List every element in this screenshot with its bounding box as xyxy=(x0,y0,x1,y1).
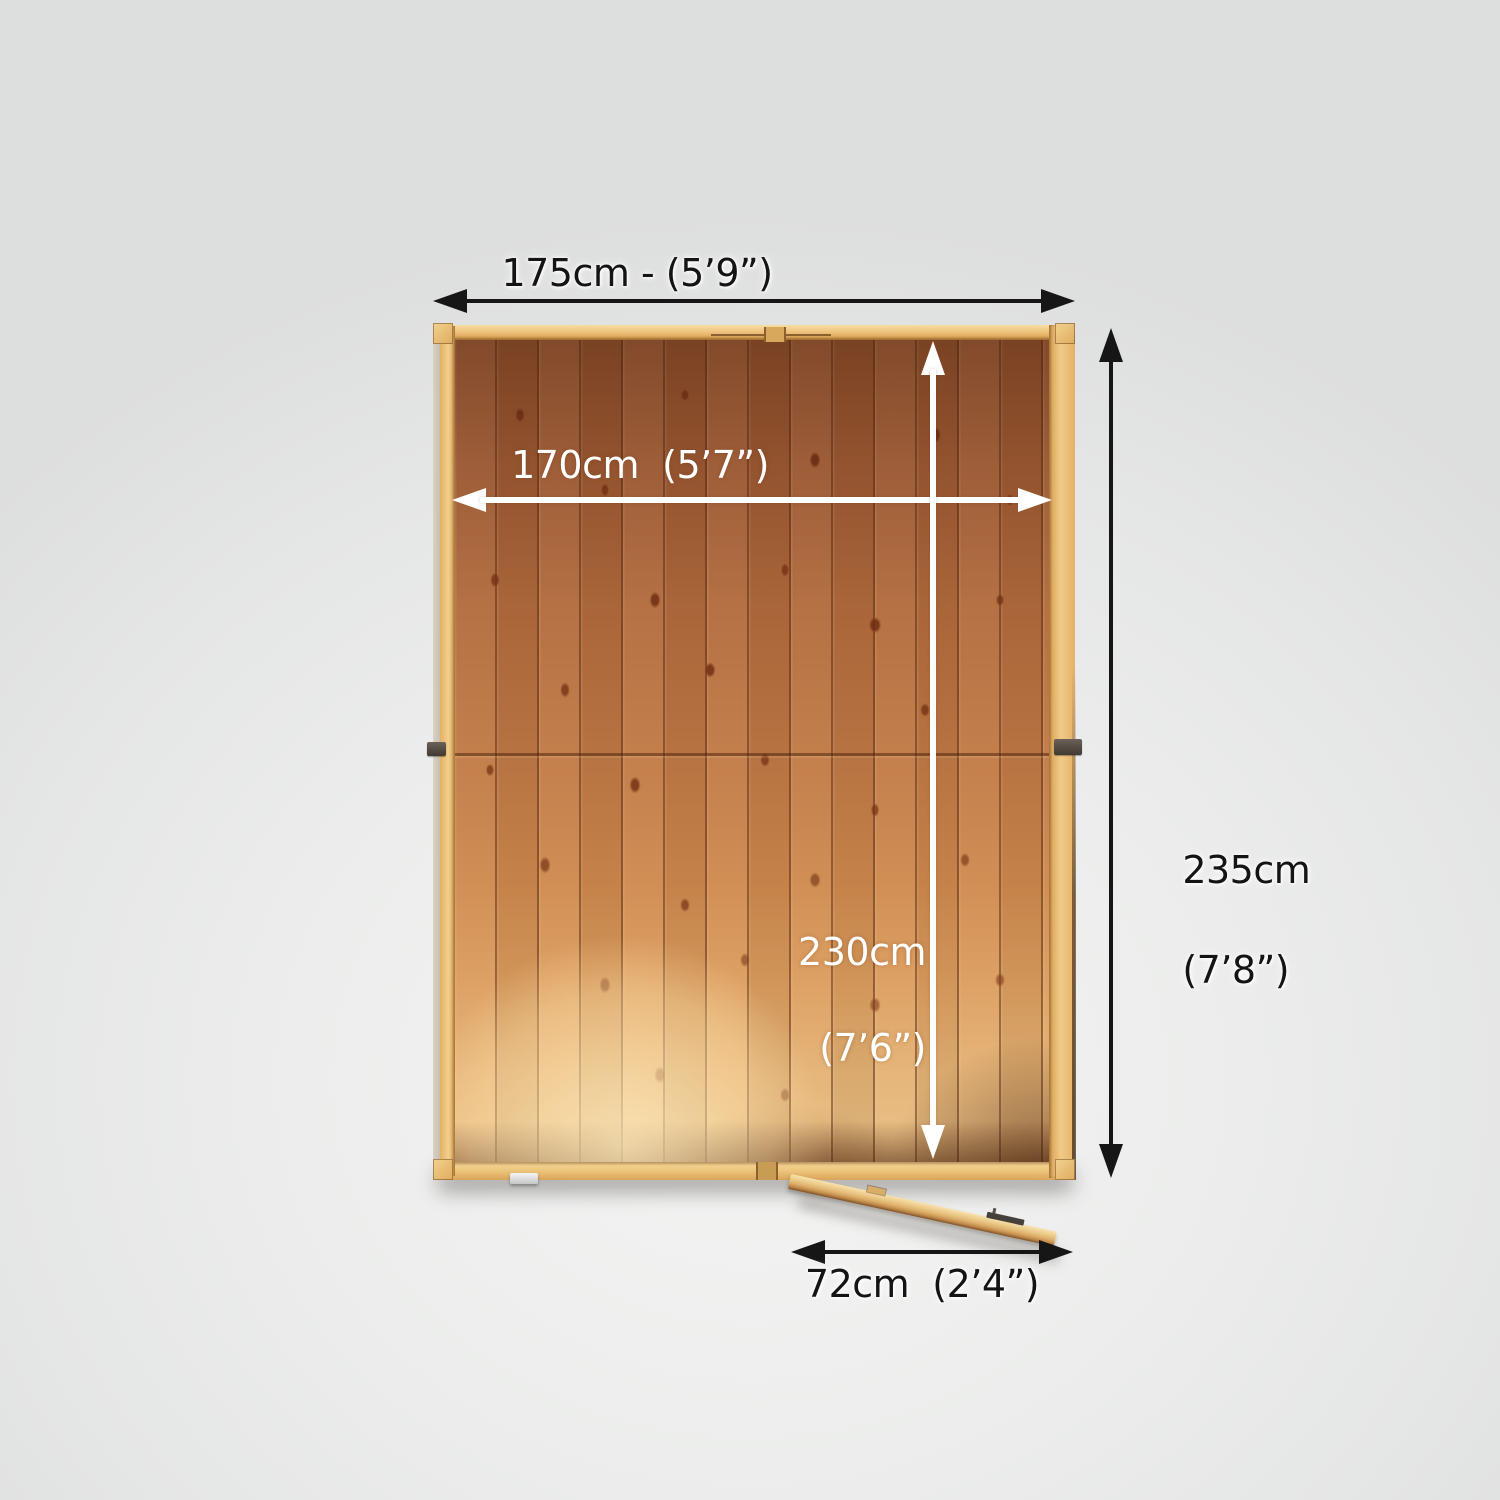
dimension-label-external-width: 175cm - (5’9”) xyxy=(437,251,837,295)
arrowhead-down-icon xyxy=(1099,1144,1123,1178)
panel-mid-seam xyxy=(455,753,1049,756)
frame-top-edge xyxy=(447,325,1073,340)
dimension-label-internal-depth: 230cm (7’6”) xyxy=(700,880,926,1120)
frame-bottom-joint xyxy=(756,1162,778,1180)
dimension-value-cm: 230cm xyxy=(798,930,926,974)
arrow-shaft xyxy=(461,299,1047,303)
arrow-shaft xyxy=(930,369,936,1131)
arrowhead-right-icon xyxy=(1018,488,1052,512)
dimension-value-imperial: (7’8”) xyxy=(1182,948,1289,992)
dimension-value-imperial: (7’6”) xyxy=(819,1026,926,1070)
arrowhead-right-icon xyxy=(1041,289,1075,313)
arrowhead-down-icon xyxy=(921,1125,945,1159)
corner-post-top-right xyxy=(1055,323,1075,344)
corner-post-bottom-left xyxy=(433,1159,453,1180)
latch-icon xyxy=(510,1173,538,1184)
dimension-value-cm: 235cm xyxy=(1182,848,1310,892)
dimension-arrow-external-depth xyxy=(1094,328,1128,1178)
dimension-label-door-width: 72cm (2’4”) xyxy=(782,1262,1062,1306)
arrow-shaft xyxy=(819,1250,1045,1254)
door-hinge-icon xyxy=(986,1212,1024,1226)
arrowhead-right-icon xyxy=(1039,1240,1073,1264)
corner-post-bottom-right xyxy=(1055,1159,1075,1180)
frame-top-joint xyxy=(764,327,786,342)
dimension-label-internal-width: 170cm (5’7”) xyxy=(445,443,835,487)
hinge-icon-left xyxy=(427,742,446,756)
product-dimension-diagram: 175cm - (5’9”) 170cm (5’7”) 230cm (7’6”)… xyxy=(0,0,1500,1500)
dimension-arrow-internal-width xyxy=(452,483,1052,517)
dimension-label-external-depth: 235cm (7’8”) xyxy=(1136,795,1376,1045)
corner-post-top-left xyxy=(433,323,453,344)
hinge-icon-right xyxy=(1054,739,1082,755)
arrow-shaft xyxy=(1109,356,1113,1150)
